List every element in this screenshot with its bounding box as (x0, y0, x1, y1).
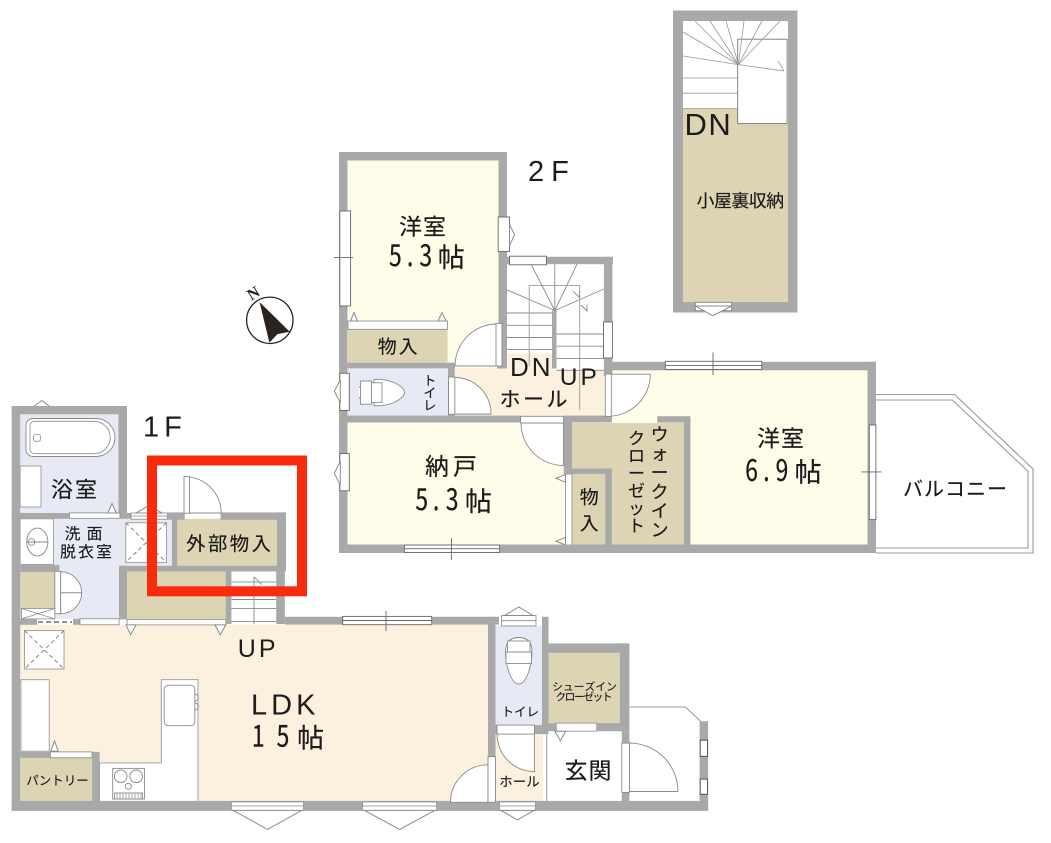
svg-text:1F: 1F (143, 412, 187, 444)
svg-text:2F: 2F (528, 156, 576, 188)
svg-text:UP: UP (238, 635, 279, 663)
svg-text:DN: DN (510, 352, 554, 382)
svg-text:UP: UP (560, 364, 600, 391)
svg-text:LDK: LDK (251, 689, 319, 721)
svg-text:DN: DN (685, 107, 733, 142)
